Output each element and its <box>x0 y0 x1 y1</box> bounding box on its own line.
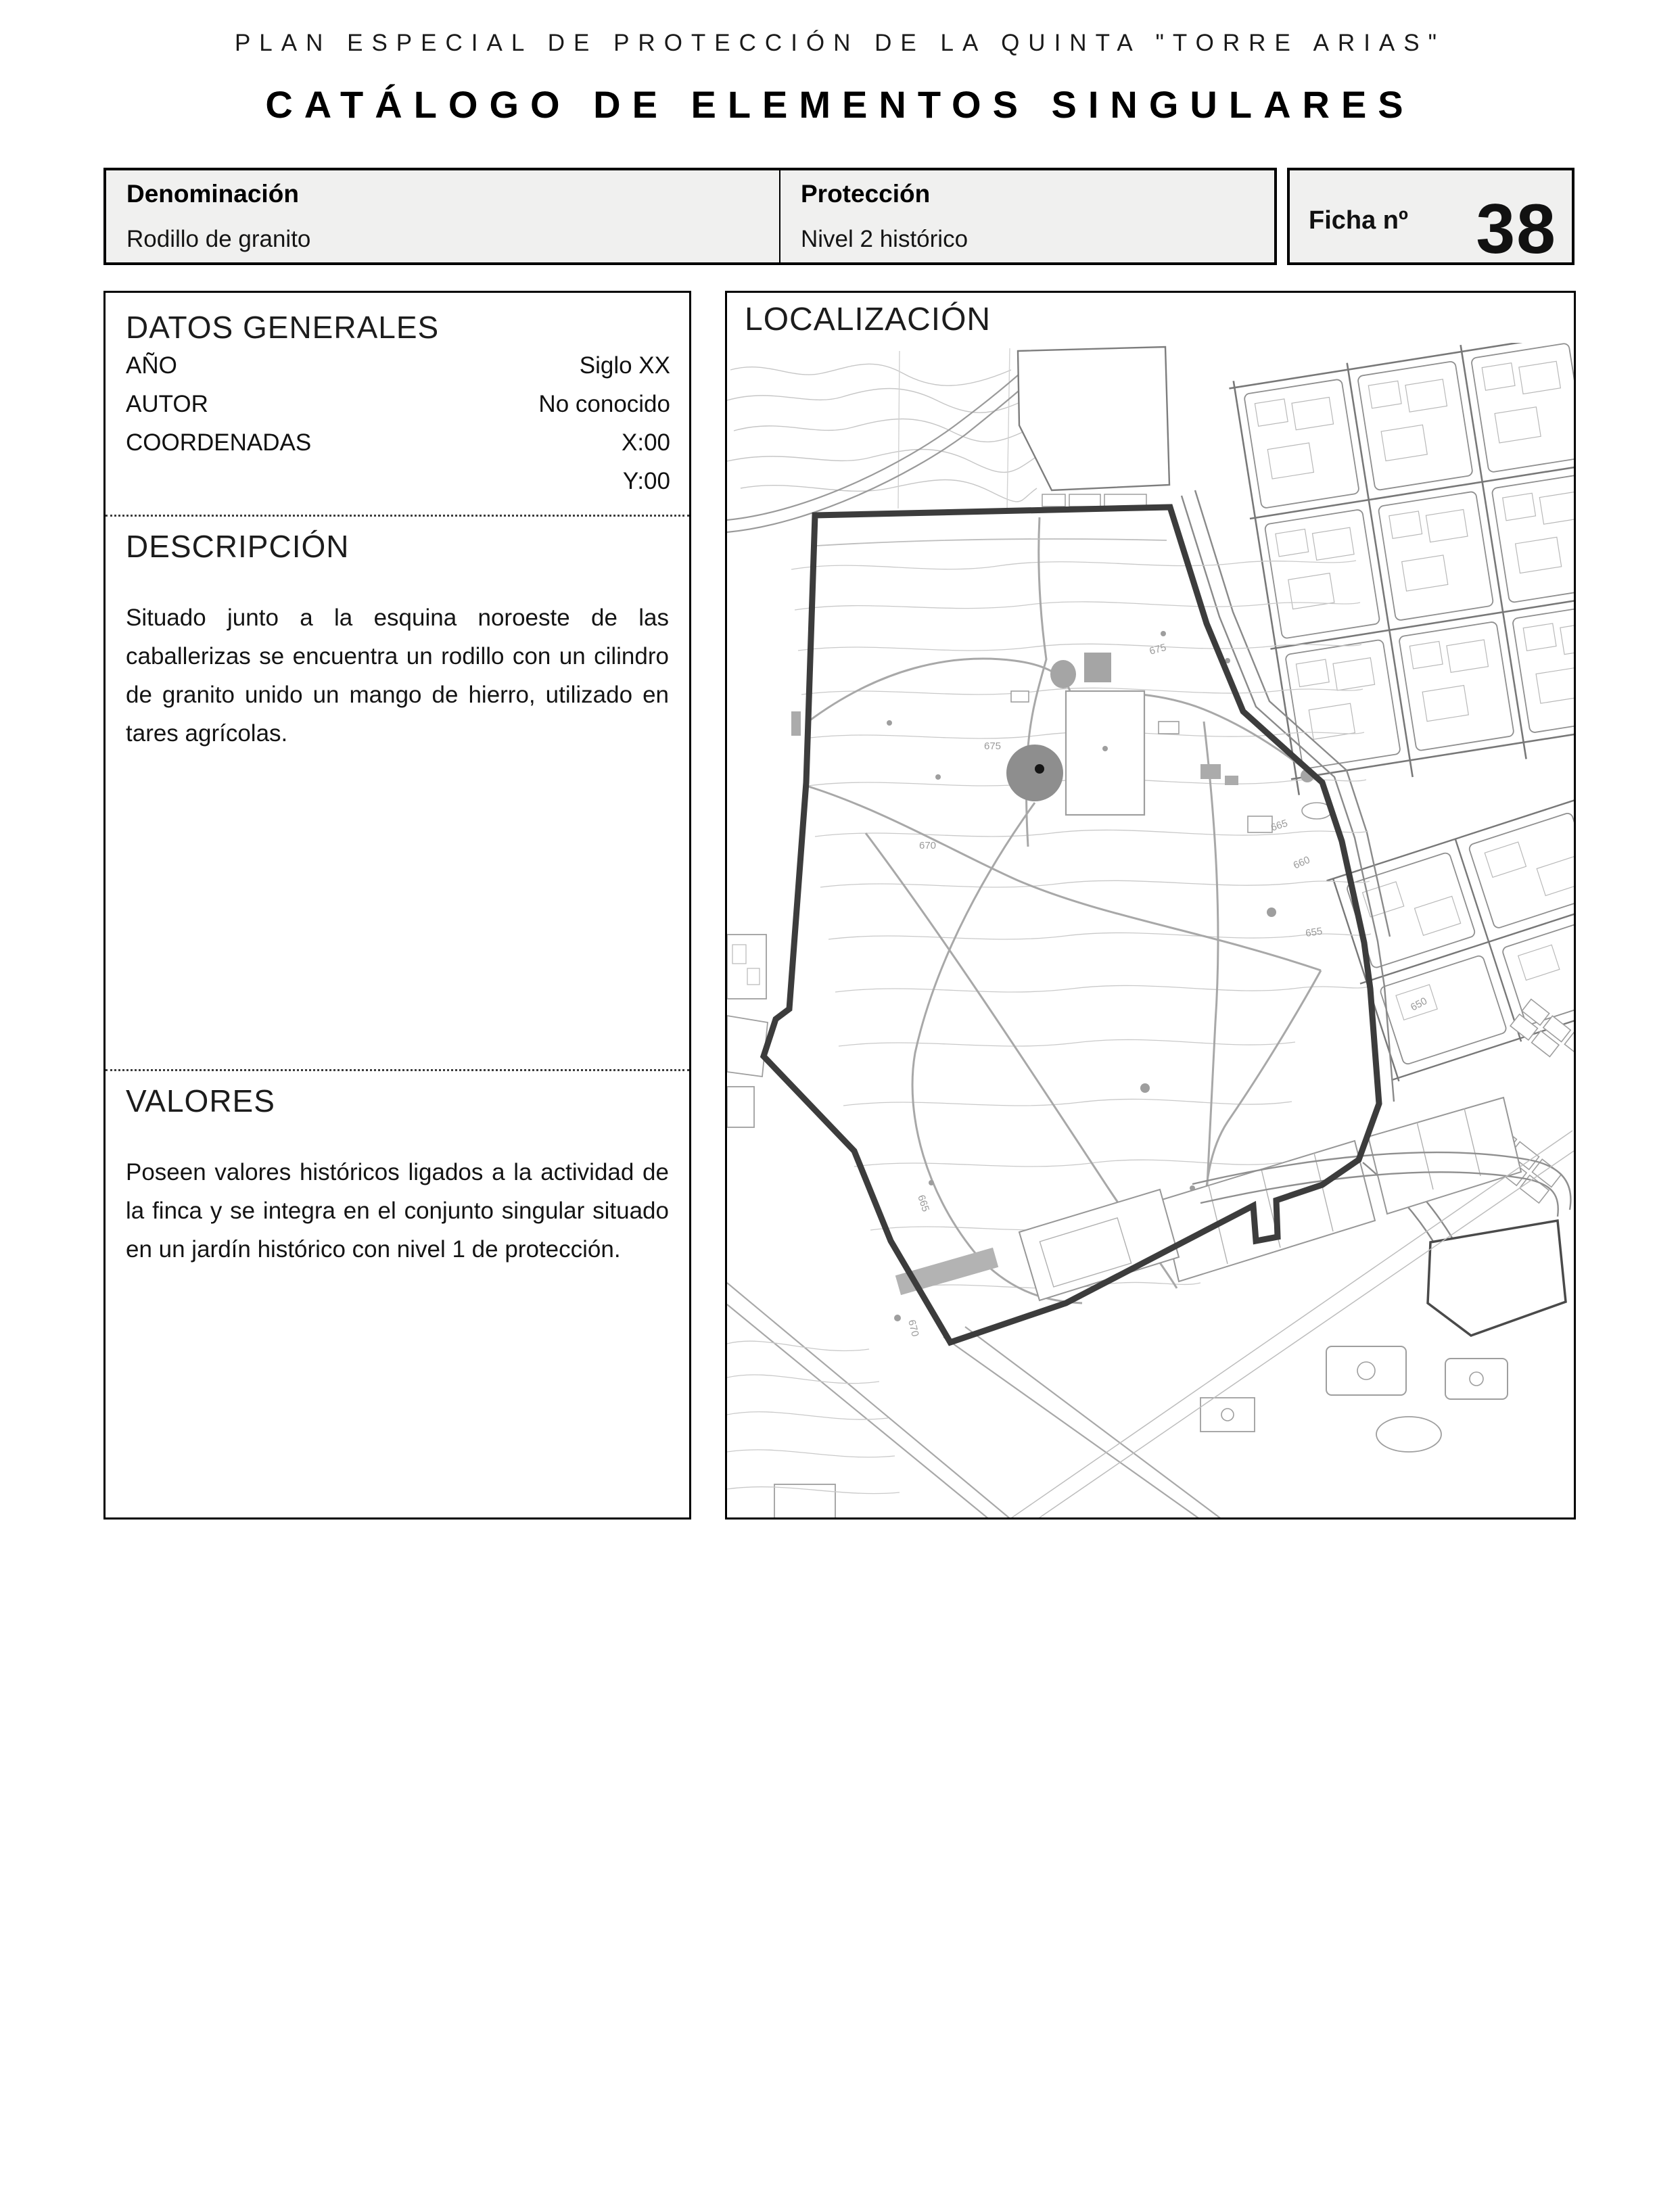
plan-supertitle: PLAN ESPECIAL DE PROTECCIÓN DE LA QUINTA… <box>0 30 1680 57</box>
elevation-label: 655 <box>1305 926 1323 939</box>
elevation-label: 660 <box>1292 854 1312 872</box>
dato-label: AÑO <box>126 352 177 379</box>
elevation-label: 665 <box>915 1194 931 1213</box>
elevation-label: 670 <box>906 1319 921 1338</box>
descripcion-heading: DESCRIPCIÓN <box>126 528 349 565</box>
dato-value: X:00 <box>622 429 670 456</box>
dato-row-autor: AUTOR No conocido <box>126 391 670 429</box>
localizacion-panel: 675 675 670 665 660 655 650 670 665 LOCA… <box>725 291 1576 1519</box>
dato-label: COORDENADAS <box>126 429 311 456</box>
dato-value: Y:00 <box>623 468 670 495</box>
ficha-number: 38 <box>1476 199 1557 261</box>
location-map: 675 675 670 665 660 655 650 670 665 <box>727 343 1574 1519</box>
localizacion-heading: LOCALIZACIÓN <box>745 301 1003 338</box>
south-industrial <box>727 1098 1574 1519</box>
proteccion-cell: Protección Nivel 2 histórico <box>780 170 1274 262</box>
valores-text: Poseen valores históricos ligados a la a… <box>126 1153 669 1269</box>
contour-lines-nw <box>727 348 1037 511</box>
catalog-title: CATÁLOGO DE ELEMENTOS SINGULARES <box>0 83 1680 126</box>
dato-value: Siglo XX <box>580 352 670 379</box>
valores-heading: VALORES <box>126 1083 275 1119</box>
dato-row-ano: AÑO Siglo XX <box>126 352 670 390</box>
denominacion-cell: Denominación Rodillo de granito <box>106 170 780 262</box>
dato-row-coordenadas: COORDENADAS X:00 <box>126 429 670 467</box>
elevation-label: 675 <box>984 740 1001 752</box>
elevation-label: 675 <box>1148 642 1168 657</box>
denominacion-label: Denominación <box>126 180 779 208</box>
dato-value: No conocido <box>538 391 670 418</box>
north-road-and-block <box>727 347 1169 532</box>
catalog-sheet-page: { "header": { "supertitle": "PLAN ESPECI… <box>0 0 1680 2191</box>
ficha-number-box: Ficha nº 38 <box>1287 168 1574 265</box>
summary-table: Denominación Rodillo de granito Protecci… <box>103 168 1277 265</box>
denominacion-value: Rodillo de granito <box>126 226 310 253</box>
dato-label: AUTOR <box>126 391 208 418</box>
contour-lines-sw <box>727 1341 900 1493</box>
dato-row-coordenada-y: Y:00 <box>126 468 670 506</box>
general-data-panel: DATOS GENERALES AÑO Siglo XX AUTOR No co… <box>103 291 691 1519</box>
proteccion-label: Protección <box>801 180 1274 208</box>
datos-generales-heading: DATOS GENERALES <box>126 309 439 346</box>
section-divider <box>106 1069 689 1071</box>
section-divider <box>106 515 689 517</box>
ficha-label: Ficha nº <box>1309 206 1408 235</box>
proteccion-value: Nivel 2 histórico <box>801 226 968 253</box>
descripcion-text: Situado junto a la esquina noroeste de l… <box>126 598 669 753</box>
elevation-label: 670 <box>919 840 936 851</box>
west-blocks <box>727 935 835 1518</box>
location-marker <box>1006 745 1063 801</box>
